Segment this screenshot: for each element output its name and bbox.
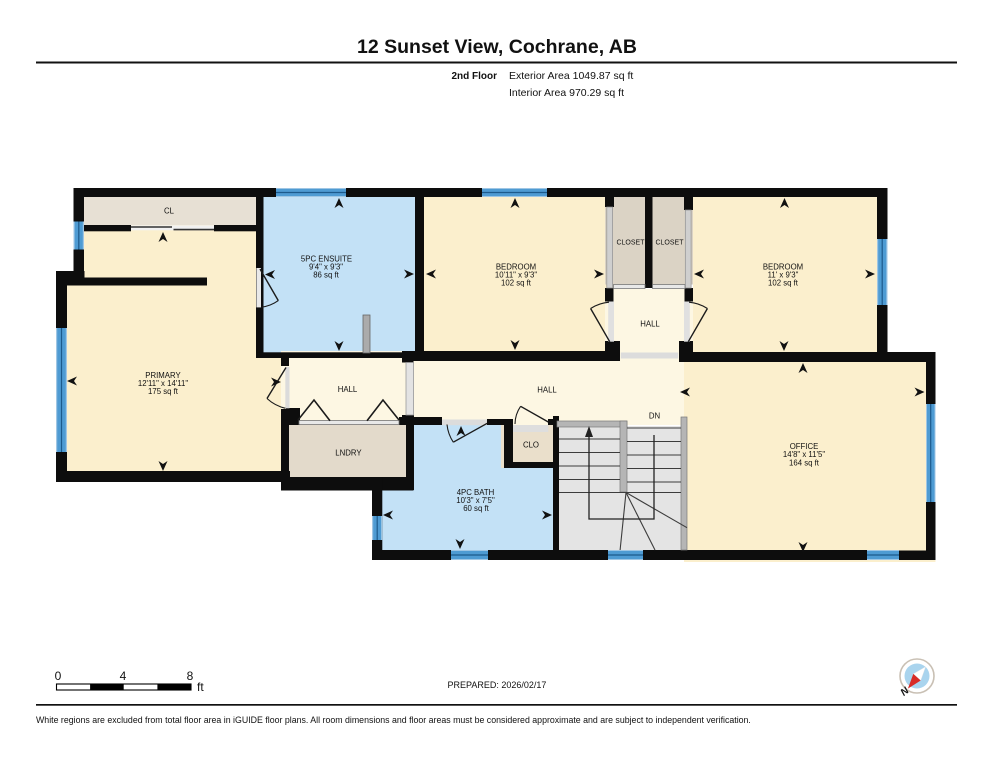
svg-text:8: 8	[187, 669, 194, 683]
svg-text:HALL: HALL	[537, 386, 557, 395]
svg-text:4: 4	[120, 669, 127, 683]
svg-text:CL: CL	[164, 207, 175, 216]
svg-text:164 sq ft: 164 sq ft	[789, 458, 820, 467]
svg-text:White regions are excluded fro: White regions are excluded from total fl…	[36, 715, 751, 725]
svg-text:60 sq ft: 60 sq ft	[463, 504, 489, 513]
svg-text:0: 0	[55, 669, 62, 683]
svg-text:2nd Floor: 2nd Floor	[451, 71, 497, 82]
svg-text:CLO: CLO	[523, 441, 539, 450]
svg-text:175 sq ft: 175 sq ft	[148, 387, 179, 396]
svg-text:PREPARED: 2026/02/17: PREPARED: 2026/02/17	[448, 680, 547, 690]
svg-text:102 sq ft: 102 sq ft	[501, 278, 532, 287]
svg-text:LNDRY: LNDRY	[335, 449, 362, 458]
svg-text:ft: ft	[197, 680, 204, 694]
svg-text:HALL: HALL	[338, 385, 358, 394]
svg-text:86 sq ft: 86 sq ft	[313, 270, 339, 279]
svg-text:102 sq ft: 102 sq ft	[768, 278, 799, 287]
svg-text:CLOSET: CLOSET	[616, 240, 645, 247]
svg-text:Interior Area 970.29 sq ft: Interior Area 970.29 sq ft	[509, 87, 624, 99]
svg-text:DN: DN	[649, 412, 660, 421]
svg-text:Exterior Area 1049.87 sq ft: Exterior Area 1049.87 sq ft	[509, 70, 633, 82]
svg-text:HALL: HALL	[640, 320, 660, 329]
svg-text:12 Sunset View, Cochrane, AB: 12 Sunset View, Cochrane, AB	[357, 36, 637, 58]
svg-text:CLOSET: CLOSET	[655, 240, 684, 247]
